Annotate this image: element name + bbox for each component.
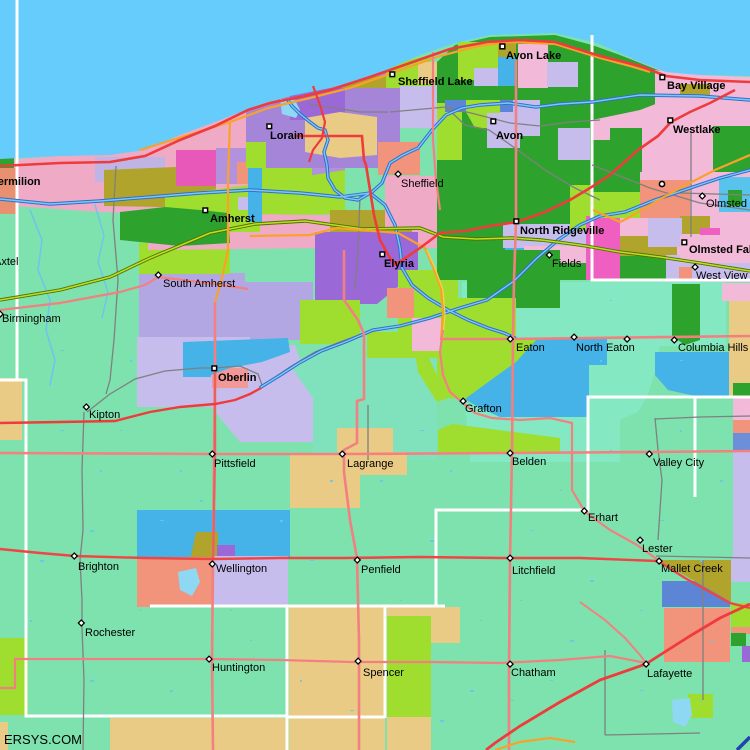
- svg-text:Grafton: Grafton: [465, 403, 502, 415]
- svg-text:Avon Lake: Avon Lake: [506, 50, 561, 62]
- svg-text:Sheffield Lake: Sheffield Lake: [398, 76, 473, 88]
- svg-text:Penfield: Penfield: [361, 564, 401, 576]
- svg-text:Bay Village: Bay Village: [667, 80, 726, 92]
- svg-text:Erhart: Erhart: [588, 512, 618, 524]
- svg-text:South Amherst: South Amherst: [163, 278, 235, 290]
- svg-text:Spencer: Spencer: [363, 667, 404, 679]
- svg-text:Sheffield: Sheffield: [401, 178, 444, 190]
- svg-text:ERSYS.COM: ERSYS.COM: [4, 732, 82, 747]
- svg-text:Chatham: Chatham: [511, 667, 556, 679]
- svg-text:Litchfield: Litchfield: [512, 565, 555, 577]
- svg-text:Fields: Fields: [552, 258, 582, 270]
- svg-text:Huntington: Huntington: [212, 662, 265, 674]
- svg-text:Eaton: Eaton: [516, 342, 545, 354]
- svg-text:Olmsted: Olmsted: [706, 198, 747, 210]
- svg-text:Brighton: Brighton: [78, 561, 119, 573]
- svg-text:Columbia Hills C: Columbia Hills C: [678, 342, 750, 354]
- svg-text:Lester: Lester: [642, 543, 673, 555]
- svg-text:Mallet Creek: Mallet Creek: [661, 563, 723, 575]
- svg-text:North Ridgeville: North Ridgeville: [520, 225, 604, 237]
- svg-text:West View: West View: [696, 270, 748, 282]
- svg-text:Lagrange: Lagrange: [347, 458, 394, 470]
- svg-text:Westlake: Westlake: [673, 124, 721, 136]
- svg-text:Avon: Avon: [496, 130, 523, 142]
- svg-text:Wellington: Wellington: [216, 563, 267, 575]
- svg-text:Oberlin: Oberlin: [218, 372, 257, 384]
- svg-text:Rochester: Rochester: [85, 627, 135, 639]
- svg-text:Pittsfield: Pittsfield: [214, 458, 256, 470]
- svg-text:Axtel: Axtel: [0, 256, 18, 268]
- svg-text:Lorain: Lorain: [270, 130, 304, 142]
- svg-text:Birmingham: Birmingham: [2, 313, 61, 325]
- svg-text:North Eaton: North Eaton: [576, 342, 635, 354]
- svg-text:Amherst: Amherst: [210, 213, 255, 225]
- svg-text:Vermilion: Vermilion: [0, 176, 41, 188]
- svg-text:Olmsted Fall: Olmsted Fall: [689, 244, 750, 256]
- svg-text:Lafayette: Lafayette: [647, 668, 692, 680]
- svg-text:Valley City: Valley City: [653, 457, 705, 469]
- svg-text:Belden: Belden: [512, 456, 546, 468]
- svg-text:Elyria: Elyria: [384, 258, 415, 270]
- svg-text:Kipton: Kipton: [89, 409, 120, 421]
